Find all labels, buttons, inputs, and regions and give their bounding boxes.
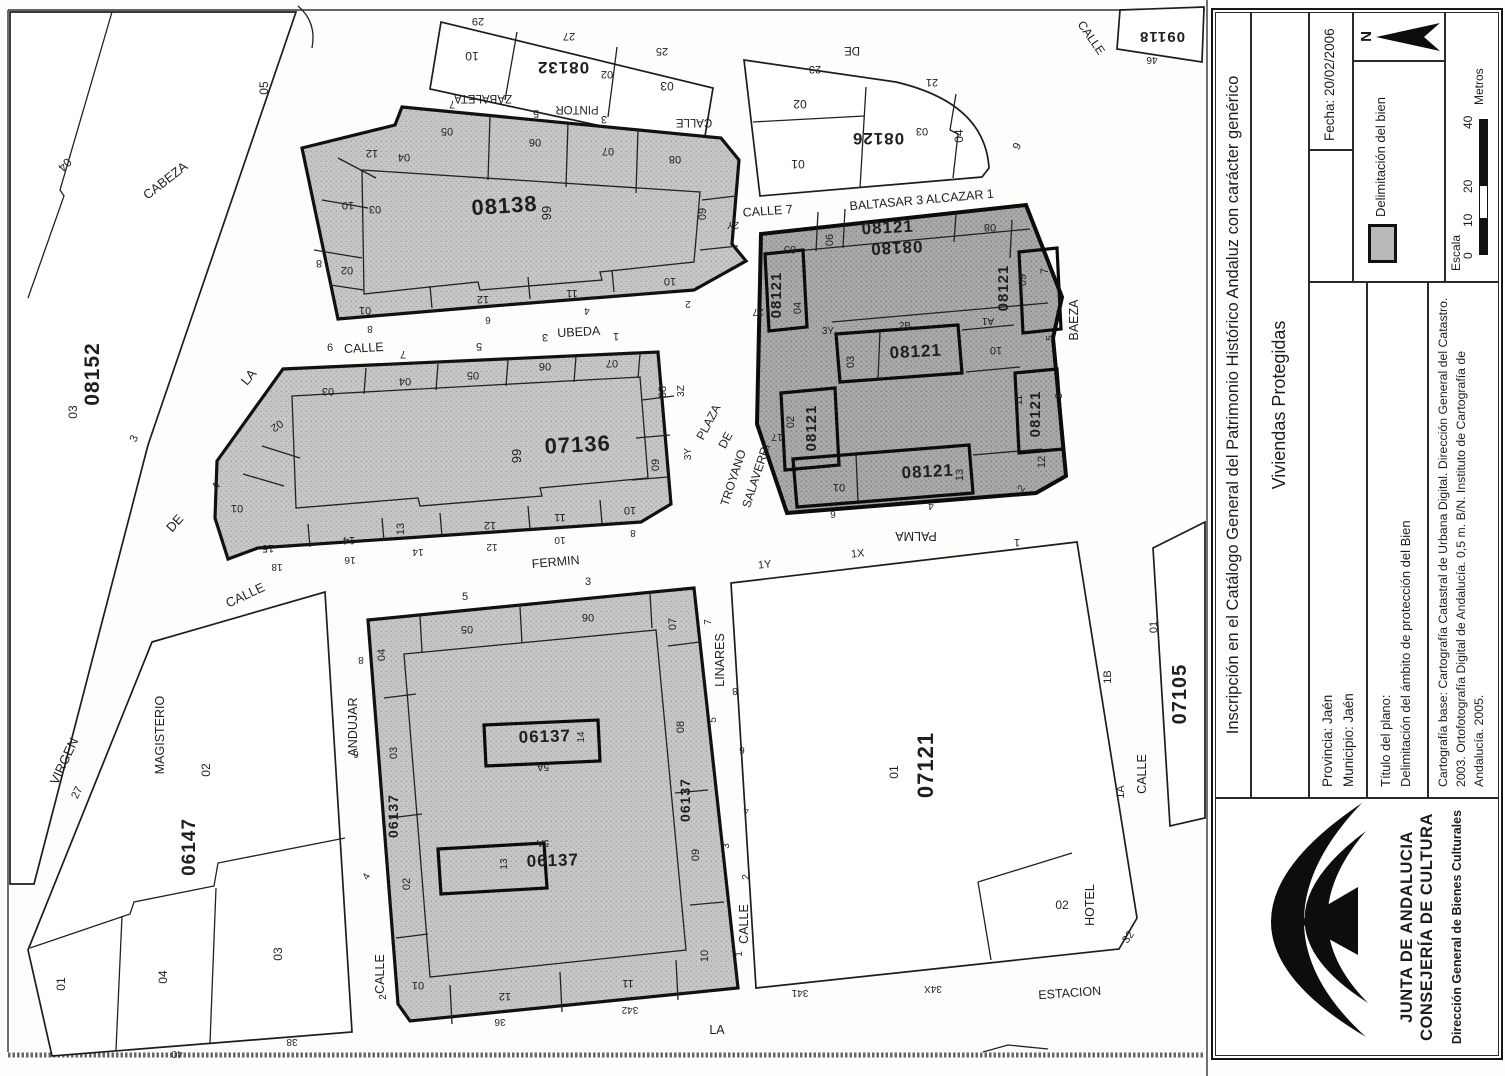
housenum-6: 6 <box>485 314 491 325</box>
parcel-07: 07 <box>667 618 679 630</box>
parcel-10: 10 <box>664 275 676 287</box>
province-cell: Provincia: Jaén Municipio: Jaén <box>1309 282 1367 798</box>
legend-label: Delimitación del bien <box>1373 97 1388 217</box>
scale-cell: Escala 0 10 20 40 Metros <box>1445 12 1499 282</box>
parcel-15: 15 <box>262 542 274 554</box>
housenum-9: 9 <box>1011 141 1024 152</box>
street-baeza: BAEZA <box>1067 299 1081 341</box>
block-code-07136: 07136 <box>544 430 611 458</box>
street-palma: PALMA <box>895 529 937 543</box>
legend-swatch <box>1368 224 1397 263</box>
housenum-10: 10 <box>554 534 566 545</box>
housenum-5: 5 <box>462 591 468 603</box>
parcel-04: 04 <box>376 649 388 661</box>
housenum-3: 3 <box>601 113 607 125</box>
parcel-06: 06 <box>529 136 541 148</box>
title-block-panel: JUNTA DE ANDALUCIA CONSEJERÍA DE CULTURA… <box>1211 8 1503 1060</box>
housenum-12: 12 <box>486 541 498 552</box>
station-curb-line <box>983 1045 1048 1052</box>
parcel-12: 12 <box>499 990 511 1002</box>
parcel-14: 14 <box>343 534 355 546</box>
parcel-12: 12 <box>477 293 489 305</box>
housenum-342: 342 <box>621 1004 638 1015</box>
street-calle: CALLE <box>223 579 267 610</box>
parcel-01: 01 <box>791 157 805 171</box>
street-la: LA <box>238 366 260 388</box>
housenum-27: 27 <box>752 306 764 317</box>
housenum-25: 25 <box>656 45 668 57</box>
street-ubeda: UBEDA <box>557 324 601 340</box>
parcel-5a: 5A <box>537 761 550 772</box>
street-de: DE <box>163 511 186 535</box>
parcel-04: 04 <box>398 151 410 163</box>
housenum-1b: 1B <box>1102 670 1114 683</box>
north-label: N <box>1358 13 1375 60</box>
housenum-6: 6 <box>327 342 333 354</box>
parcel-11: 11 <box>622 977 633 989</box>
housenum-21: 21 <box>926 76 938 88</box>
housenum-6: 6 <box>353 748 359 759</box>
parcel-03: 03 <box>660 79 674 93</box>
parcel-08: 08 <box>657 386 669 398</box>
municipality-value: Municipio: Jaén <box>1339 283 1360 787</box>
scale-tick-40: 40 <box>1461 116 1475 129</box>
parcel-03: 03 <box>916 125 928 137</box>
parcel-04: 04 <box>792 302 804 314</box>
housenum-34x: 34X <box>924 983 942 994</box>
housenum-16: 16 <box>344 554 356 565</box>
housenum-1a: 1A <box>1115 785 1127 799</box>
parcel-03: 03 <box>271 947 285 961</box>
housenum-12: 12 <box>366 147 378 159</box>
housenum-10: 10 <box>342 199 354 211</box>
housenum-4: 4 <box>928 500 934 511</box>
parcel-02: 02 <box>199 763 213 777</box>
parcel-04: 04 <box>399 375 411 387</box>
map-sheet: 08152030405CABEZALADEVIRGENCALLEMAGISTER… <box>0 0 1505 1076</box>
housenum-14: 14 <box>412 546 424 557</box>
block-code-08121: 08121 <box>901 461 954 483</box>
parcel-09: 09 <box>697 208 709 220</box>
housenum-40: 40 <box>171 1048 183 1059</box>
scale-bar-segment-2 <box>1479 185 1488 219</box>
parcel-13: 13 <box>395 523 407 535</box>
block-code-08121: 08121 <box>861 217 914 239</box>
province-value: Provincia: Jaén <box>1318 283 1339 787</box>
street-linares: LINARES <box>713 633 727 687</box>
north-cell: N <box>1353 12 1445 61</box>
parcel-12: 12 <box>1036 456 1048 468</box>
parcel-02: 02 <box>341 264 353 276</box>
block-code-07121: 07121 <box>913 732 938 798</box>
parcel-07: 07 <box>606 357 618 369</box>
parcel-02: 02 <box>401 878 413 890</box>
legend-cell: Delimitación del bien <box>1353 61 1445 282</box>
housenum-6: 6 <box>739 744 745 755</box>
housenum-7: 7 <box>400 348 406 360</box>
housenum-23: 23 <box>809 63 821 75</box>
housenum-18: 18 <box>271 561 283 572</box>
parcel-07: 07 <box>602 145 614 157</box>
parcel-05: 05 <box>461 623 473 635</box>
block-code-08126: 08126 <box>852 129 904 148</box>
sheet-title: Inscripción en el Catálogo General del P… <box>1215 12 1251 798</box>
parcel-02: 02 <box>601 68 613 80</box>
parcel-3z: 3Z <box>676 385 687 397</box>
cadastral-map: 08152030405CABEZALADEVIRGENCALLEMAGISTER… <box>0 0 1212 1076</box>
block-code-06137: 06137 <box>385 794 401 838</box>
housenum-8: 8 <box>732 685 738 696</box>
housenum-3: 3 <box>542 331 548 343</box>
parcel-09: 09 <box>650 459 662 471</box>
title-block-rotated-content: JUNTA DE ANDALUCIA CONSEJERÍA DE CULTURA… <box>1215 12 1499 1056</box>
block-code-08121: 08121 <box>1027 391 1044 438</box>
scale-units: Metros <box>1472 68 1486 105</box>
parcel-01: 01 <box>54 977 68 991</box>
parcel-11: 11 <box>1014 394 1025 405</box>
housenum-3: 3 <box>585 576 591 588</box>
block-code-08132: 08132 <box>537 58 589 77</box>
street-la: LA <box>709 1023 725 1037</box>
parcel-06: 06 <box>824 234 836 246</box>
scale-bar-segment-1 <box>1479 219 1488 255</box>
block-code-08121: 08121 <box>995 265 1012 312</box>
parcel-11: 11 <box>554 511 565 523</box>
parcel-02: 02 <box>785 416 797 428</box>
scale-tick-20: 20 <box>1461 180 1475 193</box>
parcel-01: 01 <box>1148 621 1160 633</box>
parcel-10: 10 <box>624 504 636 516</box>
parcel-10: 10 <box>699 950 711 962</box>
housenum-3: 3 <box>1054 393 1065 399</box>
housenum-2: 2 <box>685 298 691 309</box>
parcel-01: 01 <box>359 304 371 316</box>
sheet-subtitle: Viviendas Protegidas <box>1251 12 1309 798</box>
block-code-08121: 08121 <box>768 272 785 319</box>
parcel-02: 02 <box>1055 898 1069 912</box>
housenum-38: 38 <box>286 1036 298 1047</box>
org-subunit: Dirección General de Bienes Culturales <box>1450 799 1464 1055</box>
parcel-03: 03 <box>388 747 400 759</box>
parcel-99: 99 <box>539 206 554 220</box>
block-code-08121: 08121 <box>803 405 820 452</box>
parcel-13: 13 <box>954 469 966 481</box>
parcel-01: 01 <box>833 481 845 493</box>
parcel-09: 09 <box>1017 274 1029 286</box>
plan-title-value: Delimitación del ámbito de protección de… <box>1396 283 1416 787</box>
housenum-1: 1 <box>1014 536 1020 548</box>
housenum-8: 8 <box>367 323 373 334</box>
block-08126 <box>744 60 989 196</box>
org-name-line1: JUNTA DE ANDALUCIA <box>1398 799 1417 1055</box>
block-code-07105: 07105 <box>1169 664 1191 725</box>
parcel-04: 04 <box>952 129 966 143</box>
parcel-3y: 3Y <box>822 326 835 337</box>
housenum-1: 1 <box>613 330 619 342</box>
block-code-06147: 06147 <box>179 818 200 876</box>
parcel-05: 05 <box>467 369 479 381</box>
housenum-36: 36 <box>494 1016 506 1027</box>
street-calle: CALLE <box>373 954 387 994</box>
block-code-09118: 09118 <box>1139 28 1185 45</box>
block-code-08121: 08121 <box>889 341 942 363</box>
housenum-341: 341 <box>791 987 808 998</box>
road-corner-curve <box>298 6 313 48</box>
parcel-02: 02 <box>793 97 807 111</box>
street-calle: CALLE <box>1075 18 1108 57</box>
org-name-line2: CONSEJERÍA DE CULTURA <box>1418 799 1437 1055</box>
date-cell: Fecha: 20/02/2006 <box>1309 12 1353 150</box>
parcel-11: 11 <box>566 287 577 299</box>
street-calle: CALLE <box>344 340 384 356</box>
parcel-09: 09 <box>690 849 702 861</box>
parcel-10: 10 <box>465 49 479 63</box>
housenum-4: 4 <box>584 305 590 316</box>
housenum-5: 5 <box>1045 335 1056 341</box>
parcel-03: 03 <box>369 203 381 215</box>
block-code-08138: 08138 <box>471 191 539 221</box>
block-code-08152: 08152 <box>81 342 104 405</box>
housenum-8: 8 <box>316 257 322 269</box>
parcel-10: 10 <box>990 344 1002 356</box>
housenum-46: 46 <box>1146 54 1158 65</box>
parcel-01: 01 <box>231 502 243 514</box>
scale-tick-10: 10 <box>1461 214 1475 227</box>
logo-cell: JUNTA DE ANDALUCIA CONSEJERÍA DE CULTURA… <box>1215 798 1499 1056</box>
parcel-01: 01 <box>412 979 424 991</box>
parcel-01: 01 <box>887 765 901 779</box>
housenum-5: 5 <box>708 717 719 723</box>
parcel-03: 03 <box>322 385 334 397</box>
street-de: DE <box>844 44 860 56</box>
parcel-14: 14 <box>576 731 587 743</box>
plan-title-label: Título del plano: <box>1376 283 1396 787</box>
housenum-7: 7 <box>703 619 714 625</box>
housenum-1: 1 <box>734 951 745 957</box>
parcel-2y: 2Y <box>727 219 740 230</box>
housenum-4: 4 <box>743 805 749 816</box>
parcel-03: 03 <box>845 356 857 368</box>
street-calle-7: CALLE 7 <box>742 202 793 219</box>
parcel-08: 08 <box>984 221 996 233</box>
parcel-12: 12 <box>484 519 496 531</box>
street-hotel: HOTEL <box>1083 884 1097 926</box>
block-code-06137: 06137 <box>677 778 693 822</box>
street-de: DE <box>715 429 735 450</box>
parcel-06: 06 <box>539 360 551 372</box>
housenum-5: 5 <box>533 107 539 119</box>
parcel-08: 08 <box>675 721 687 733</box>
housenum-8: 8 <box>630 527 636 538</box>
street-magisterio: MAGISTERIO <box>153 695 167 774</box>
cartography-source-cell: Cartografía base: Cartografía Catastral … <box>1428 282 1499 798</box>
parcel-a1: A1 <box>981 315 994 326</box>
parcel-3y: 3Y <box>683 448 694 461</box>
parcel-13: 13 <box>499 858 510 870</box>
housenum-4: 4 <box>361 871 374 882</box>
housenum-2: 2 <box>741 874 752 880</box>
street-calle: CALLE <box>737 904 751 944</box>
parcel-2b: 2B <box>899 321 912 332</box>
parcel-99: 99 <box>509 449 524 463</box>
north-arrow-icon <box>1374 14 1444 60</box>
housenum-5: 5 <box>476 340 482 352</box>
street-calle: CALLE <box>675 116 712 128</box>
street-estacion: ESTACION <box>1038 984 1102 1002</box>
parcel-1x: 1X <box>851 547 866 560</box>
housenum-8: 8 <box>358 654 364 665</box>
parcel-08: 08 <box>669 153 681 165</box>
parcel-04: 04 <box>156 970 170 984</box>
parcel-1y: 1Y <box>758 558 773 571</box>
housenum-29: 29 <box>472 15 484 27</box>
parcel-05: 05 <box>441 125 453 137</box>
parcel-06: 06 <box>582 611 594 623</box>
housenum-27: 27 <box>69 785 85 801</box>
plan-title-cell: Título del plano: Delimitación del ámbit… <box>1367 282 1428 798</box>
parcel-03: 03 <box>66 405 80 419</box>
block-code-06137: 06137 <box>518 726 571 747</box>
street-pintor: PINTOR <box>555 103 598 115</box>
street-calle: CALLE <box>1135 754 1149 794</box>
housenum-27: 27 <box>563 30 575 42</box>
street-fermin: FERMIN <box>531 553 580 571</box>
housenum-2: 2 <box>378 994 389 1000</box>
parcel-05: 05 <box>784 243 796 255</box>
housenum-17: 17 <box>771 431 783 442</box>
housenum-3: 3 <box>721 843 732 849</box>
scale-bar-segment-3 <box>1479 119 1488 185</box>
housenum-7: 7 <box>1039 268 1051 274</box>
housenum-6: 6 <box>830 508 836 519</box>
scale-tick-0: 0 <box>1461 252 1475 259</box>
street-zabaleta: ZABALETA <box>454 92 512 104</box>
empty-cell <box>1309 150 1353 282</box>
block-code-06137: 06137 <box>526 850 579 871</box>
parcel-05: 05 <box>257 81 271 95</box>
street-andujar: ANDUJAR <box>346 697 360 756</box>
block-code-08180: 08180 <box>870 237 923 259</box>
parcel-5a: 5A <box>537 837 550 848</box>
